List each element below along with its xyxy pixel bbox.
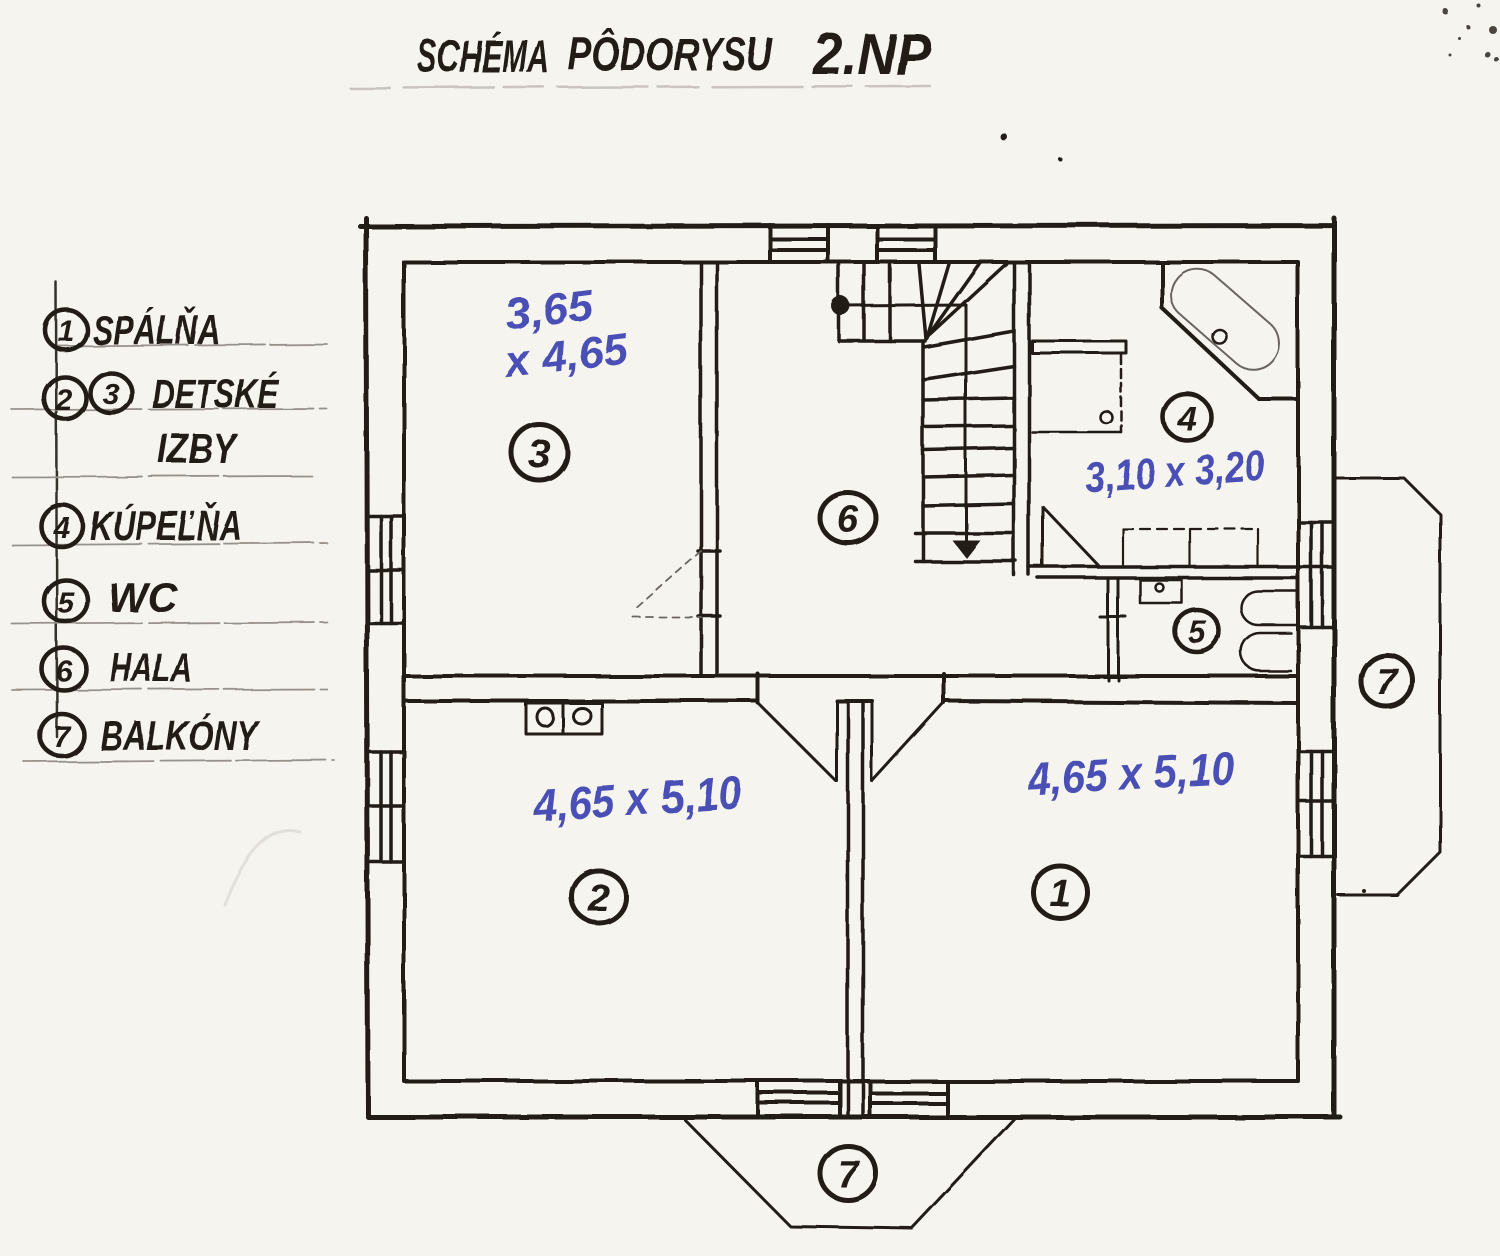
svg-text:7: 7: [54, 721, 72, 754]
svg-text:2: 2: [587, 878, 609, 920]
svg-text:3: 3: [103, 378, 120, 411]
svg-text:DETSKÉ: DETSKÉ: [152, 370, 279, 417]
svg-text:7: 7: [837, 1154, 860, 1196]
svg-text:2.NP: 2.NP: [812, 22, 931, 87]
svg-text:6: 6: [837, 499, 859, 541]
svg-text:5: 5: [58, 587, 76, 620]
svg-text:HALA: HALA: [110, 644, 192, 691]
svg-text:7: 7: [1376, 662, 1399, 704]
svg-text:SCHÉMA: SCHÉMA: [417, 30, 549, 82]
svg-text:6: 6: [56, 655, 73, 688]
svg-text:3: 3: [528, 432, 550, 476]
svg-text:5: 5: [1188, 614, 1207, 650]
svg-text:WC: WC: [108, 574, 179, 621]
svg-text:4,65 x 5,10: 4,65 x 5,10: [1025, 742, 1237, 805]
svg-text:KÚPEĽŇA: KÚPEĽŇA: [90, 501, 242, 549]
svg-text:4: 4: [53, 512, 71, 545]
svg-text:4: 4: [1177, 400, 1197, 438]
svg-text:PÔDORYSU: PÔDORYSU: [568, 28, 773, 80]
svg-text:IZBY: IZBY: [158, 425, 239, 472]
svg-text:1: 1: [58, 315, 75, 348]
svg-text:SPÁLŇA: SPÁLŇA: [92, 305, 220, 353]
svg-text:1: 1: [1049, 873, 1070, 915]
svg-text:2: 2: [55, 384, 73, 417]
svg-text:BALKÓNY: BALKÓNY: [100, 712, 261, 759]
